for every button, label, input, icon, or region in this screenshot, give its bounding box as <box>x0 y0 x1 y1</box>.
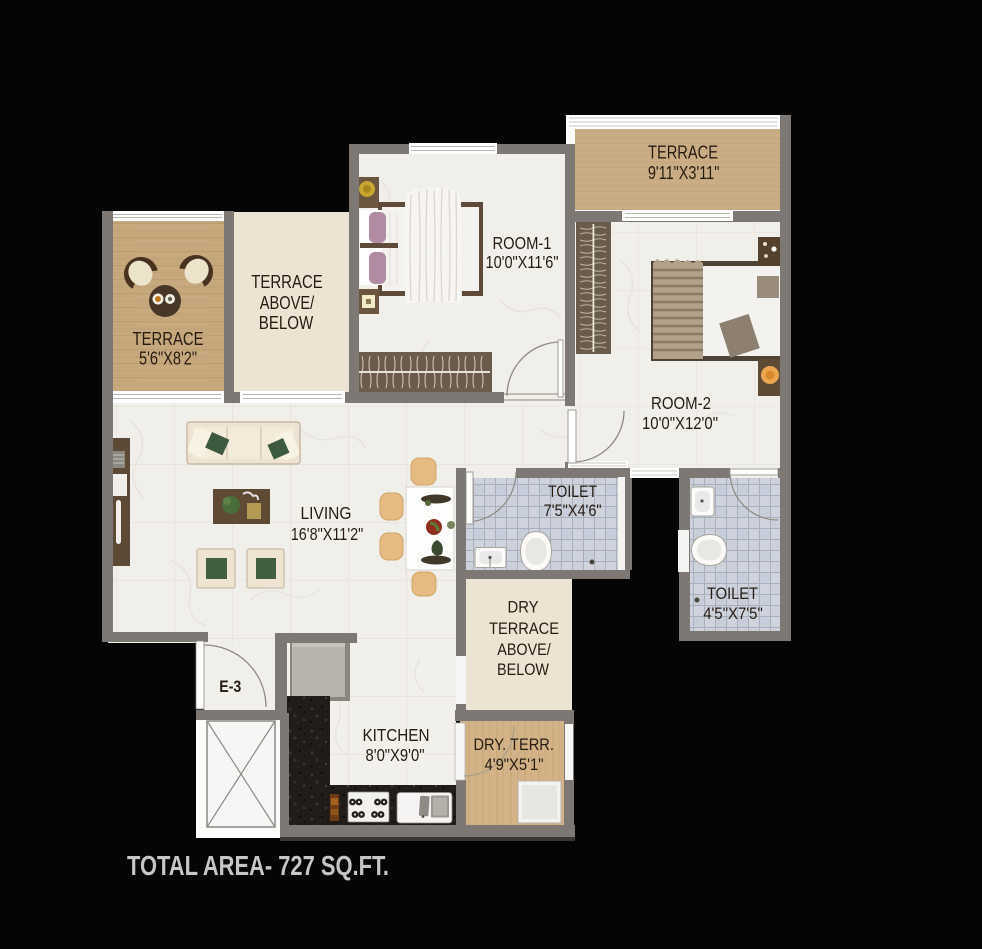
svg-text:TERRACE: TERRACE <box>133 328 204 349</box>
svg-text:TERRACE: TERRACE <box>648 142 718 163</box>
svg-text:LIVING: LIVING <box>301 503 352 523</box>
svg-text:DRY: DRY <box>508 598 539 617</box>
svg-text:TERRACE: TERRACE <box>489 619 559 638</box>
svg-text:4'9"X5'1": 4'9"X5'1" <box>485 756 544 774</box>
svg-text:KITCHEN: KITCHEN <box>363 725 430 745</box>
svg-text:4'5"X7'5": 4'5"X7'5" <box>703 605 763 623</box>
svg-text:TOILET: TOILET <box>548 483 597 501</box>
svg-text:8'0"X9'0": 8'0"X9'0" <box>366 745 425 765</box>
svg-text:BELOW: BELOW <box>497 660 549 679</box>
svg-text:10'0"X11'6": 10'0"X11'6" <box>486 252 559 272</box>
svg-text:TOTAL AREA- 727 SQ.FT.: TOTAL AREA- 727 SQ.FT. <box>127 850 389 881</box>
svg-text:E-3: E-3 <box>219 678 241 696</box>
svg-text:BELOW: BELOW <box>259 312 314 333</box>
svg-text:TERRACE: TERRACE <box>251 271 323 292</box>
svg-text:7'5"X4'6": 7'5"X4'6" <box>544 502 602 520</box>
svg-text:16'8"X11'2": 16'8"X11'2" <box>291 524 364 544</box>
svg-text:9'11"X3'11": 9'11"X3'11" <box>648 162 720 183</box>
svg-text:TOILET: TOILET <box>707 585 758 603</box>
svg-text:ABOVE/: ABOVE/ <box>497 640 551 659</box>
svg-text:5'6"X8'2": 5'6"X8'2" <box>139 348 197 369</box>
svg-text:ROOM-1: ROOM-1 <box>493 233 552 253</box>
svg-text:ABOVE/: ABOVE/ <box>260 292 315 313</box>
svg-text:10'0"X12'0": 10'0"X12'0" <box>642 413 718 433</box>
svg-text:ROOM-2: ROOM-2 <box>651 393 711 413</box>
svg-text:DRY. TERR.: DRY. TERR. <box>473 736 554 754</box>
